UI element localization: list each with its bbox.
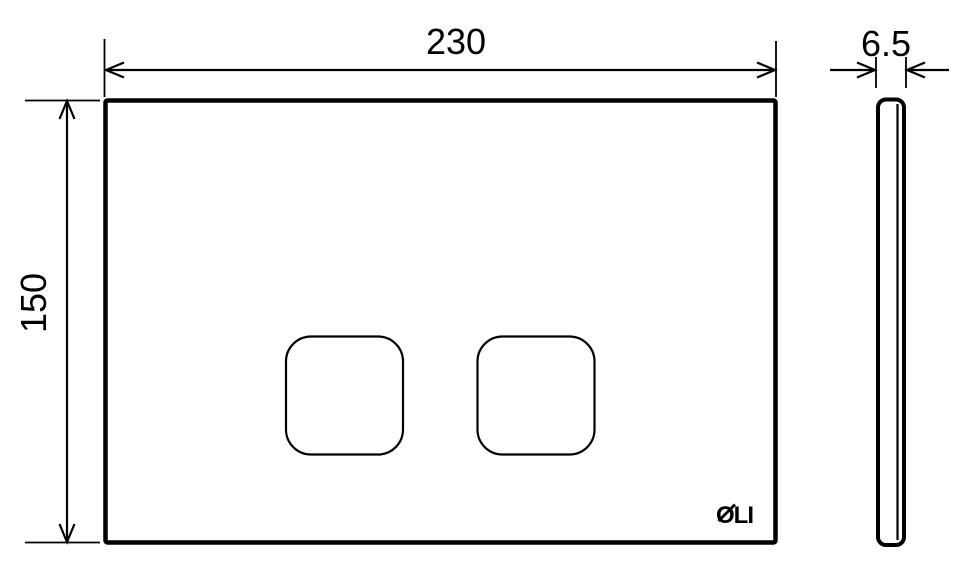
plate-outline	[106, 101, 776, 543]
height-dimension: 150	[13, 101, 100, 543]
width-dimension-label: 230	[426, 21, 486, 62]
front-view: OLI	[106, 101, 776, 543]
drawing-svg: OLI 230 150	[0, 0, 973, 577]
height-dimension-label: 150	[13, 273, 54, 333]
technical-drawing: OLI 230 150	[0, 0, 973, 577]
width-dimension: 230	[105, 21, 777, 97]
flush-button-left	[286, 337, 403, 455]
flush-button-right	[478, 337, 595, 455]
thickness-dimension: 6.5	[830, 23, 949, 88]
side-view	[878, 100, 904, 546]
thickness-dimension-label: 6.5	[861, 23, 911, 64]
side-profile-outline	[878, 100, 904, 546]
